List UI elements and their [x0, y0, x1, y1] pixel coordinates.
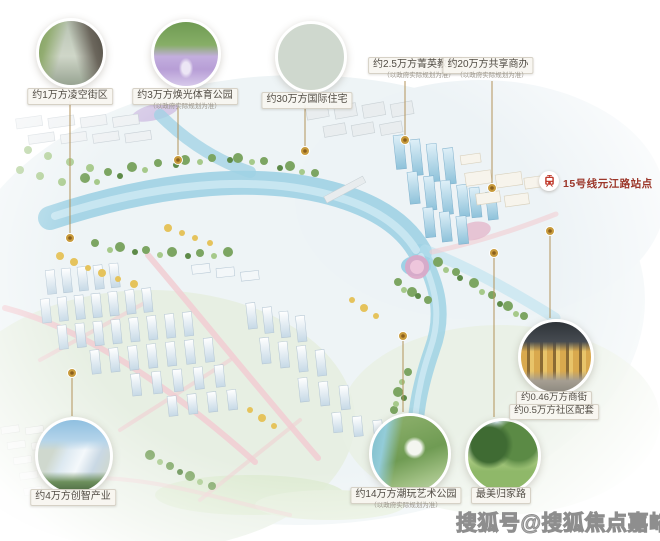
photo-homecoming	[465, 418, 541, 494]
metro-station-badge	[539, 171, 559, 191]
metro-station-label: 15号线元江路站点	[563, 176, 653, 191]
note-art-park: （以政府实际规划为准）	[370, 503, 442, 510]
note-education: （以政府实际规划为准）	[383, 73, 455, 80]
label-industry: 约4万方创智产业	[30, 489, 116, 506]
promo-masterplan-image: 约1万方凌空街区 约3万方焕光体育公园 （以政府实际规划为准） 约30万方国际住…	[0, 0, 660, 541]
photo-art-park	[369, 413, 451, 495]
photo-residence	[275, 21, 347, 93]
label-homecoming: 最美归家路	[471, 487, 531, 504]
note-sports-park: （以政府实际规划为准）	[149, 104, 221, 111]
photo-industry	[35, 417, 113, 495]
watermark-text: 搜狐号@搜狐焦点嘉峪关站	[456, 507, 660, 537]
label-street-block: 约1万方凌空街区	[27, 88, 113, 105]
photo-street-block	[36, 18, 106, 88]
metro-train-icon	[543, 175, 556, 188]
note-business: （以政府实际规划为准）	[456, 73, 528, 80]
label-residence: 约30万方国际住宅	[261, 92, 352, 109]
photo-retail-street	[518, 319, 594, 395]
label-retail-line2: 约0.5万方社区配套	[509, 404, 599, 420]
photo-sports-park	[151, 19, 221, 89]
